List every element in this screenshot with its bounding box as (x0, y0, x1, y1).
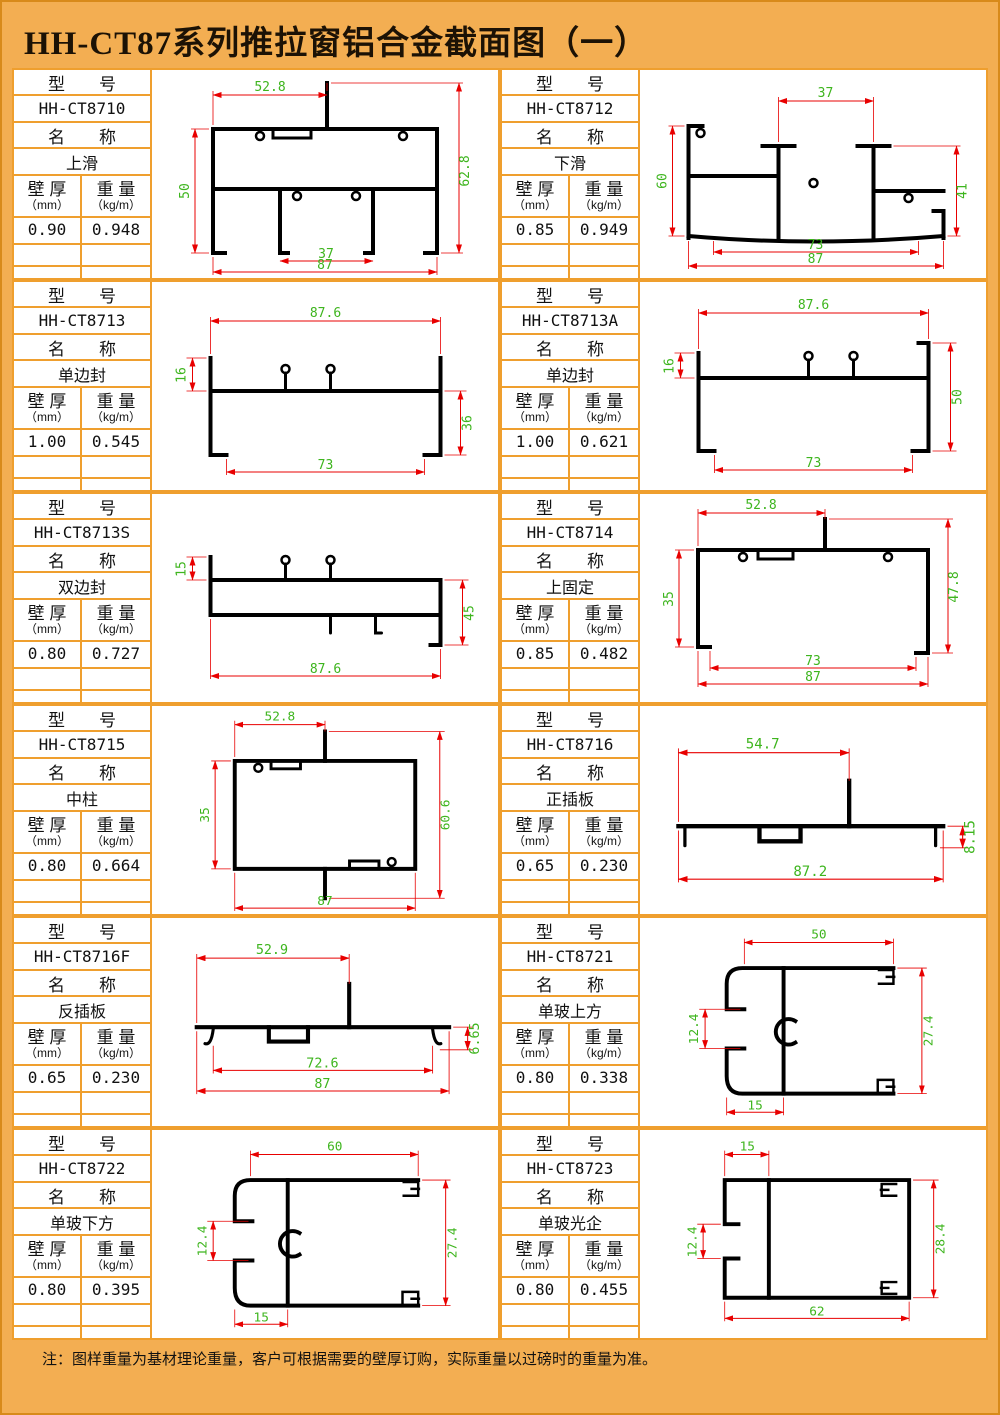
dim-right: 27.4 (922, 1015, 937, 1046)
profile-grid: 型 号 HH-CT8710 名 称 上滑 壁 厚（mm） 重 量（kg/m） 0… (12, 68, 988, 1340)
empty-row (14, 1305, 150, 1327)
profile-cell-hh-ct8712: 型 号 HH-CT8712 名 称 下滑 壁 厚（mm） 重 量（kg/m） 0… (500, 68, 988, 280)
model-value: HH-CT8713S (14, 520, 150, 547)
spec-value-row: 0.80 0.395 (14, 1278, 150, 1305)
thickness-label: 壁 厚（mm） (502, 812, 570, 852)
spec-header-row: 壁 厚（mm） 重 量（kg/m） (502, 388, 638, 430)
spec-header-row: 壁 厚（mm） 重 量（kg/m） (14, 388, 150, 430)
dim-top: 60 (327, 1140, 342, 1155)
thickness-value: 0.85 (502, 642, 570, 667)
weight-label: 重 量（kg/m） (570, 812, 638, 852)
dim-bottom: 15 (747, 1098, 762, 1113)
spec-table: 型 号 HH-CT8722 名 称 单玻下方 壁 厚（mm） 重 量（kg/m）… (14, 1130, 152, 1338)
dim-top: 54.7 (745, 736, 779, 752)
cross-section-drawing: 52.8 50 62.8 37 87 (152, 70, 498, 278)
name-value: 中柱 (14, 785, 150, 812)
cross-section-drawing: 15 12.4 28.4 62 (640, 1130, 986, 1338)
dim-top: 15 (740, 1140, 755, 1155)
name-value: 单边封 (14, 361, 150, 388)
thickness-value: 0.80 (14, 1278, 82, 1303)
profile-cell-hh-ct8721: 型 号 HH-CT8721 名 称 单玻上方 壁 厚（mm） 重 量（kg/m）… (500, 916, 988, 1128)
dim-bottom: 15 (254, 1310, 269, 1325)
name-label: 名 称 (502, 759, 638, 785)
cross-section-drawing: 52.8 35 47.8 73 87 (640, 494, 986, 702)
empty-row (502, 245, 638, 267)
weight-label: 重 量（kg/m） (570, 1236, 638, 1276)
dim-left: 16 (662, 358, 677, 374)
thickness-label: 壁 厚（mm） (502, 1024, 570, 1064)
name-label: 名 称 (502, 971, 638, 997)
name-value: 单玻光企 (502, 1209, 638, 1236)
dim-inner: 72.6 (306, 1056, 338, 1071)
thickness-label: 壁 厚（mm） (14, 388, 82, 428)
model-value: HH-CT8723 (502, 1156, 638, 1183)
name-value: 反插板 (14, 997, 150, 1024)
name-label: 名 称 (14, 759, 150, 785)
profile-cell-hh-ct8713s: 型 号 HH-CT8713S 名 称 双边封 壁 厚（mm） 重 量（kg/m）… (12, 492, 500, 704)
model-label: 型 号 (14, 918, 150, 944)
empty-row (14, 669, 150, 691)
weight-label: 重 量（kg/m） (82, 1024, 150, 1064)
thickness-value: 0.85 (502, 218, 570, 243)
dim-right: 62.8 (458, 155, 473, 186)
model-value: HH-CT8715 (14, 732, 150, 759)
spec-table: 型 号 HH-CT8723 名 称 单玻光企 壁 厚（mm） 重 量（kg/m）… (502, 1130, 640, 1338)
empty-row (502, 479, 638, 490)
spec-table: 型 号 HH-CT8715 名 称 中柱 壁 厚（mm） 重 量（kg/m） 0… (14, 706, 152, 914)
model-label: 型 号 (14, 70, 150, 96)
model-label: 型 号 (502, 282, 638, 308)
weight-value: 0.230 (82, 1066, 150, 1091)
dim-bottom: 87 (317, 258, 333, 273)
thickness-value: 0.80 (14, 642, 82, 667)
dim-left: 35 (198, 807, 213, 822)
empty-row (14, 881, 150, 903)
empty-row (14, 267, 150, 278)
spec-header-row: 壁 厚（mm） 重 量（kg/m） (14, 812, 150, 854)
cross-section-drawing: 37 60 41 73 87 (640, 70, 986, 278)
name-label: 名 称 (14, 335, 150, 361)
profile-cell-hh-ct8710: 型 号 HH-CT8710 名 称 上滑 壁 厚（mm） 重 量（kg/m） 0… (12, 68, 500, 280)
thickness-label: 壁 厚（mm） (14, 812, 82, 852)
page-title: HH-CT87系列推拉窗铝合金截面图（一） (12, 12, 988, 68)
dim-bottom: 62 (809, 1304, 824, 1319)
spec-header-row: 壁 厚（mm） 重 量（kg/m） (502, 600, 638, 642)
name-label: 名 称 (14, 1183, 150, 1209)
weight-value: 0.482 (570, 642, 638, 667)
dim-right: 36 (460, 415, 475, 431)
weight-label: 重 量（kg/m） (82, 812, 150, 852)
dim-inner: 73 (807, 238, 823, 253)
model-value: HH-CT8714 (502, 520, 638, 547)
weight-value: 0.395 (82, 1278, 150, 1303)
profile-cell-hh-ct8715: 型 号 HH-CT8715 名 称 中柱 壁 厚（mm） 重 量（kg/m） 0… (12, 704, 500, 916)
spec-value-row: 0.65 0.230 (502, 854, 638, 881)
dim-left: 16 (174, 367, 189, 383)
dim-left: 50 (178, 183, 193, 199)
thickness-label: 壁 厚（mm） (502, 388, 570, 428)
spec-table: 型 号 HH-CT8716F 名 称 反插板 壁 厚（mm） 重 量（kg/m）… (14, 918, 152, 1126)
spec-value-row: 0.65 0.230 (14, 1066, 150, 1093)
profile-cell-hh-ct8713: 型 号 HH-CT8713 名 称 单边封 壁 厚（mm） 重 量（kg/m） … (12, 280, 500, 492)
empty-row (14, 1093, 150, 1115)
name-value: 正插板 (502, 785, 638, 812)
dim-bottom: 87 (805, 670, 821, 685)
model-value: HH-CT8716 (502, 732, 638, 759)
cross-section-drawing: 87.6 16 36 73 (152, 282, 498, 490)
spec-table: 型 号 HH-CT8710 名 称 上滑 壁 厚（mm） 重 量（kg/m） 0… (14, 70, 152, 278)
spec-header-row: 壁 厚（mm） 重 量（kg/m） (14, 600, 150, 642)
dim-top: 87.6 (309, 306, 340, 321)
spec-value-row: 1.00 0.621 (502, 430, 638, 457)
spec-value-row: 0.80 0.455 (502, 1278, 638, 1305)
empty-row (502, 669, 638, 691)
empty-row (502, 1305, 638, 1327)
model-label: 型 号 (14, 494, 150, 520)
empty-row (14, 245, 150, 267)
spec-table: 型 号 HH-CT8712 名 称 下滑 壁 厚（mm） 重 量（kg/m） 0… (502, 70, 640, 278)
thickness-label: 壁 厚（mm） (14, 176, 82, 216)
dim-left: 12.4 (685, 1226, 700, 1257)
spec-header-row: 壁 厚（mm） 重 量（kg/m） (14, 1024, 150, 1066)
model-value: HH-CT8713 (14, 308, 150, 335)
thickness-value: 1.00 (14, 430, 82, 455)
spec-header-row: 壁 厚（mm） 重 量（kg/m） (502, 812, 638, 854)
spec-table: 型 号 HH-CT8716 名 称 正插板 壁 厚（mm） 重 量（kg/m） … (502, 706, 640, 914)
name-label: 名 称 (502, 335, 638, 361)
dim-right: 60.6 (439, 800, 454, 831)
dim-right: 41 (955, 183, 970, 199)
empty-row (502, 881, 638, 903)
dim-right: 6.65 (467, 1022, 482, 1054)
dim-top: 52.8 (745, 498, 776, 513)
cross-section-drawing: 15 45 87.6 (152, 494, 498, 702)
model-label: 型 号 (502, 706, 638, 732)
model-value: HH-CT8713A (502, 308, 638, 335)
thickness-value: 1.00 (502, 430, 570, 455)
weight-label: 重 量（kg/m） (82, 600, 150, 640)
thickness-value: 0.90 (14, 218, 82, 243)
model-value: HH-CT8721 (502, 944, 638, 971)
thickness-label: 壁 厚（mm） (14, 1024, 82, 1064)
weight-value: 0.230 (570, 854, 638, 879)
dim-bottom: 87 (317, 894, 332, 909)
cross-section-drawing: 60 12.4 27.4 15 (152, 1130, 498, 1338)
weight-value: 0.338 (570, 1066, 638, 1091)
name-label: 名 称 (502, 547, 638, 573)
name-value: 单边封 (502, 361, 638, 388)
cross-section-drawing: 50 12.4 27.4 15 (640, 918, 986, 1126)
dim-right: 27.4 (445, 1227, 460, 1258)
thickness-value: 0.65 (14, 1066, 82, 1091)
name-label: 名 称 (14, 123, 150, 149)
empty-row (502, 1093, 638, 1115)
weight-label: 重 量（kg/m） (82, 1236, 150, 1276)
thickness-label: 壁 厚（mm） (502, 600, 570, 640)
weight-label: 重 量（kg/m） (570, 388, 638, 428)
dim-bottom: 87.6 (309, 662, 340, 677)
cross-section-drawing: 52.8 35 60.6 87 (152, 706, 498, 914)
model-label: 型 号 (14, 706, 150, 732)
empty-row (14, 457, 150, 479)
name-label: 名 称 (502, 1183, 638, 1209)
name-label: 名 称 (14, 971, 150, 997)
name-value: 单玻上方 (502, 997, 638, 1024)
model-label: 型 号 (502, 494, 638, 520)
dim-bottom: 73 (805, 456, 821, 471)
weight-label: 重 量（kg/m） (570, 1024, 638, 1064)
thickness-value: 0.65 (502, 854, 570, 879)
weight-label: 重 量（kg/m） (82, 388, 150, 428)
spec-table: 型 号 HH-CT8721 名 称 单玻上方 壁 厚（mm） 重 量（kg/m）… (502, 918, 640, 1126)
thickness-value: 0.80 (502, 1278, 570, 1303)
spec-value-row: 0.85 0.949 (502, 218, 638, 245)
model-value: HH-CT8712 (502, 96, 638, 123)
catalog-sheet: HH-CT87系列推拉窗铝合金截面图（一） 型 号 HH-CT8710 名 称 … (0, 0, 1000, 1415)
thickness-label: 壁 厚（mm） (502, 1236, 570, 1276)
empty-row (14, 1327, 150, 1338)
name-value: 上固定 (502, 573, 638, 600)
profile-cell-hh-ct8714: 型 号 HH-CT8714 名 称 上固定 壁 厚（mm） 重 量（kg/m） … (500, 492, 988, 704)
spec-table: 型 号 HH-CT8713A 名 称 单边封 壁 厚（mm） 重 量（kg/m）… (502, 282, 640, 490)
spec-header-row: 壁 厚（mm） 重 量（kg/m） (14, 1236, 150, 1278)
empty-row (502, 1327, 638, 1338)
empty-row (502, 1115, 638, 1126)
empty-row (502, 903, 638, 914)
dim-right: 47.8 (947, 571, 962, 602)
dim-top: 87.6 (797, 298, 828, 313)
thickness-label: 壁 厚（mm） (14, 600, 82, 640)
empty-row (502, 457, 638, 479)
name-value: 下滑 (502, 149, 638, 176)
spec-value-row: 0.80 0.338 (502, 1066, 638, 1093)
model-label: 型 号 (14, 282, 150, 308)
weight-value: 0.545 (82, 430, 150, 455)
profile-cell-hh-ct8723: 型 号 HH-CT8723 名 称 单玻光企 壁 厚（mm） 重 量（kg/m）… (500, 1128, 988, 1340)
spec-table: 型 号 HH-CT8714 名 称 上固定 壁 厚（mm） 重 量（kg/m） … (502, 494, 640, 702)
model-value: HH-CT8722 (14, 1156, 150, 1183)
empty-row (502, 691, 638, 702)
spec-header-row: 壁 厚（mm） 重 量（kg/m） (502, 1236, 638, 1278)
weight-value: 0.727 (82, 642, 150, 667)
spec-value-row: 1.00 0.545 (14, 430, 150, 457)
dim-top: 52.9 (255, 943, 287, 958)
model-label: 型 号 (502, 918, 638, 944)
weight-value: 0.621 (570, 430, 638, 455)
thickness-label: 壁 厚（mm） (14, 1236, 82, 1276)
dim-bottom: 87.2 (793, 864, 827, 880)
dim-right: 50 (950, 389, 965, 405)
name-value: 双边封 (14, 573, 150, 600)
weight-value: 0.455 (570, 1278, 638, 1303)
profile-cell-hh-ct8722: 型 号 HH-CT8722 名 称 单玻下方 壁 厚（mm） 重 量（kg/m）… (12, 1128, 500, 1340)
profile-cell-hh-ct8716: 型 号 HH-CT8716 名 称 正插板 壁 厚（mm） 重 量（kg/m） … (500, 704, 988, 916)
cross-section-drawing: 52.9 6.65 72.6 87 (152, 918, 498, 1126)
spec-table: 型 号 HH-CT8713S 名 称 双边封 壁 厚（mm） 重 量（kg/m）… (14, 494, 152, 702)
spec-value-row: 0.80 0.727 (14, 642, 150, 669)
spec-table: 型 号 HH-CT8713 名 称 单边封 壁 厚（mm） 重 量（kg/m） … (14, 282, 152, 490)
name-value: 单玻下方 (14, 1209, 150, 1236)
weight-value: 0.664 (82, 854, 150, 879)
empty-row (14, 479, 150, 490)
dim-top: 50 (811, 928, 826, 943)
model-label: 型 号 (502, 70, 638, 96)
model-label: 型 号 (502, 1130, 638, 1156)
dim-top: 52.8 (254, 80, 285, 95)
spec-value-row: 0.85 0.482 (502, 642, 638, 669)
model-value: HH-CT8710 (14, 96, 150, 123)
spec-header-row: 壁 厚（mm） 重 量（kg/m） (502, 1024, 638, 1066)
weight-value: 0.949 (570, 218, 638, 243)
dim-bottom: 87 (314, 1077, 330, 1092)
weight-label: 重 量（kg/m） (570, 600, 638, 640)
name-label: 名 称 (502, 123, 638, 149)
empty-row (14, 903, 150, 914)
dim-right: 8.15 (962, 820, 978, 854)
dim-left: 12.4 (687, 1013, 702, 1044)
dim-bottom: 73 (317, 458, 333, 473)
thickness-value: 0.80 (14, 854, 82, 879)
spec-header-row: 壁 厚（mm） 重 量（kg/m） (14, 176, 150, 218)
model-value: HH-CT8716F (14, 944, 150, 971)
model-label: 型 号 (14, 1130, 150, 1156)
weight-label: 重 量（kg/m） (570, 176, 638, 216)
empty-row (14, 1115, 150, 1126)
cross-section-drawing: 87.6 16 50 73 (640, 282, 986, 490)
empty-row (502, 267, 638, 278)
thickness-label: 壁 厚（mm） (502, 176, 570, 216)
dim-inner: 73 (805, 654, 821, 669)
spec-value-row: 0.90 0.948 (14, 218, 150, 245)
dim-left: 12.4 (195, 1225, 210, 1256)
dim-right: 45 (462, 605, 477, 621)
dim-right: 28.4 (933, 1223, 948, 1254)
thickness-value: 0.80 (502, 1066, 570, 1091)
weight-value: 0.948 (82, 218, 150, 243)
dim-left: 60 (655, 173, 670, 189)
dim-bottom: 87 (807, 252, 823, 267)
profile-cell-hh-ct8716f: 型 号 HH-CT8716F 名 称 反插板 壁 厚（mm） 重 量（kg/m）… (12, 916, 500, 1128)
footer-note: 注：图样重量为基材理论重量，客户可根据需要的壁厚订购，实际重量以过磅时的重量为准… (12, 1348, 988, 1369)
spec-header-row: 壁 厚（mm） 重 量（kg/m） (502, 176, 638, 218)
dim-top: 52.8 (265, 710, 296, 725)
dim-top: 37 (817, 86, 833, 101)
weight-label: 重 量（kg/m） (82, 176, 150, 216)
empty-row (14, 691, 150, 702)
dim-left: 35 (662, 591, 677, 607)
profile-cell-hh-ct8713a: 型 号 HH-CT8713A 名 称 单边封 壁 厚（mm） 重 量（kg/m）… (500, 280, 988, 492)
cross-section-drawing: 54.7 8.15 87.2 (640, 706, 986, 914)
dim-left: 15 (174, 561, 189, 577)
name-value: 上滑 (14, 149, 150, 176)
name-label: 名 称 (14, 547, 150, 573)
spec-value-row: 0.80 0.664 (14, 854, 150, 881)
